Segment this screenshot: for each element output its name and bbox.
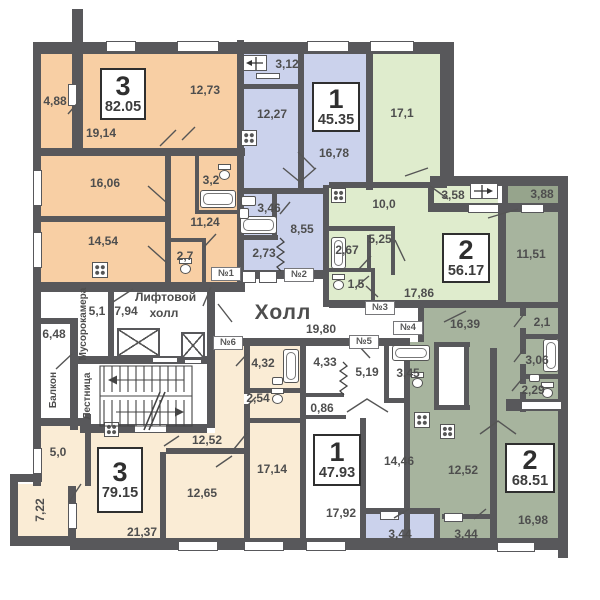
room-area-label: 1,5 — [342, 277, 370, 291]
apartment-badge: 1 47.93 — [313, 434, 361, 486]
wall — [202, 242, 206, 282]
room-area-label: 12,52 — [440, 463, 486, 477]
window — [177, 41, 219, 52]
room-area-label: 5,19 — [349, 365, 385, 379]
apartment-badge: 3 79.15 — [97, 447, 143, 513]
wall — [306, 415, 346, 419]
window — [68, 503, 77, 529]
apartment-rooms-count: 1 — [328, 87, 343, 112]
stove-icon — [331, 188, 346, 203]
sink-icon — [529, 374, 540, 382]
door-icon — [243, 55, 267, 71]
apartment-total-area: 82.05 — [105, 99, 141, 115]
wall — [237, 40, 244, 284]
wall — [558, 176, 568, 558]
wall — [520, 308, 526, 316]
wall — [520, 328, 526, 354]
room-area-label: 0,86 — [305, 401, 339, 415]
door-number-tag: №5 — [349, 335, 379, 349]
window — [244, 541, 284, 551]
elevator-icon — [117, 328, 160, 357]
room-area-label: 7,22 — [33, 490, 47, 530]
apartment-total-area: 68.51 — [512, 473, 548, 489]
room-area-label: 11,24 — [182, 215, 228, 229]
garbage-area-label: 5,1 — [86, 304, 108, 318]
stove-icon — [104, 422, 119, 437]
wall — [165, 156, 171, 284]
floor-plan: 3 82.05 1 45.35 2 56.17 2 68.51 3 79.15 … — [0, 0, 600, 600]
window — [521, 401, 562, 410]
wall — [10, 478, 18, 540]
room-area-label: 14,54 — [80, 234, 126, 248]
room-area-label: 2,73 — [246, 246, 282, 260]
wall — [33, 216, 169, 222]
room-area-label: 19,14 — [78, 126, 124, 140]
room-area-label: 3,88 — [524, 187, 560, 201]
door-number-tag: №1 — [211, 267, 241, 281]
room-area-label: 16,98 — [510, 513, 556, 527]
wall — [300, 340, 306, 545]
room-area-label: 16,39 — [442, 317, 488, 331]
wall — [238, 188, 326, 194]
lift-hall-label: Лифтовой — [135, 290, 193, 304]
room-area-label: 3,44 — [382, 527, 418, 541]
staircase-steps — [100, 366, 192, 430]
wall — [506, 302, 566, 308]
wall — [244, 346, 250, 394]
washer-icon — [239, 208, 249, 219]
room-area-label: 3,58 — [436, 188, 470, 202]
apartment-rooms-count: 1 — [329, 440, 344, 465]
elevator-icon — [181, 332, 205, 359]
room-area-label: 3,46 — [252, 201, 286, 215]
room-area-label: 17,14 — [249, 462, 295, 476]
room-area-label: 4,33 — [307, 355, 343, 369]
garbage-room-label: Мусорокамера — [77, 286, 91, 362]
room-area-label: 2,67 — [329, 243, 365, 257]
apartment-rooms-count: 2 — [458, 238, 473, 263]
wall — [371, 268, 375, 304]
bathtub-icon — [392, 345, 430, 361]
wall — [250, 418, 303, 423]
room-area-label: 16,78 — [312, 146, 356, 160]
room-area-label: 14,46 — [376, 454, 422, 468]
bathtub-icon — [283, 349, 299, 383]
room-area-label: 12,65 — [179, 486, 225, 500]
lift-hall-label: холл — [147, 306, 181, 320]
wall — [243, 84, 300, 89]
wall — [329, 226, 395, 231]
wall — [366, 42, 373, 190]
window — [497, 542, 535, 552]
stove-icon — [241, 130, 257, 146]
window — [468, 204, 499, 213]
wall — [10, 474, 42, 482]
lift-hall-area-label: 7,94 — [111, 304, 141, 318]
room-area-label: 17,86 — [396, 286, 442, 300]
apartment-total-area: 79.15 — [102, 485, 138, 501]
balcony-area-label: 6,48 — [40, 327, 68, 341]
wall — [434, 508, 440, 542]
door-number-tag: №4 — [393, 321, 423, 335]
wall — [72, 9, 83, 42]
room-area-label: 21,37 — [119, 525, 165, 539]
apartment-badge: 1 45.35 — [312, 82, 360, 132]
elevator-door — [152, 357, 178, 363]
room-area-label: 4,88 — [38, 94, 72, 108]
staircase-label: Лестница — [81, 366, 95, 426]
apartment-badge: 2 68.51 — [505, 443, 555, 493]
room-area-label: 10,0 — [366, 197, 402, 211]
room-area-label: 3,12 — [270, 57, 304, 71]
window — [306, 541, 346, 551]
wall — [384, 398, 410, 403]
elevator-door — [184, 359, 202, 364]
apartment-total-area: 47.93 — [319, 465, 355, 481]
wall — [440, 42, 454, 184]
apartment-badge: 2 56.17 — [442, 233, 490, 283]
door-icon — [470, 183, 498, 199]
window — [521, 204, 544, 213]
stove-icon — [440, 424, 455, 439]
door-number-tag: №2 — [284, 268, 314, 282]
wall — [498, 210, 506, 308]
hall-title: Холл — [248, 302, 318, 324]
apartment-rooms-count: 2 — [522, 448, 537, 473]
stove-icon — [414, 412, 430, 428]
window — [307, 41, 349, 52]
apartment-total-area: 45.35 — [318, 112, 354, 128]
room-area-label: 12,52 — [185, 433, 229, 447]
room-area-label: 3,45 — [391, 366, 425, 380]
wall — [306, 393, 344, 397]
wall — [464, 342, 469, 410]
stove-icon — [92, 262, 108, 278]
vent-shaft — [259, 271, 277, 283]
window — [33, 448, 42, 474]
wall — [10, 536, 76, 546]
window — [370, 41, 414, 52]
room-area-label: 2,7 — [171, 249, 199, 263]
wall — [238, 235, 278, 240]
window — [33, 170, 42, 206]
room-area-label: 16,06 — [82, 176, 128, 190]
window — [444, 513, 463, 522]
balcony-label: Балкон — [47, 350, 61, 430]
window — [380, 511, 399, 520]
wall — [490, 348, 497, 542]
apartment-badge: 3 82.05 — [100, 68, 146, 120]
room-area-label: 3,2 — [197, 173, 225, 187]
shaft — [439, 347, 464, 405]
wall — [166, 448, 244, 454]
stair-landing — [134, 424, 167, 433]
door-number-tag: №3 — [365, 301, 395, 315]
sink-icon — [272, 377, 283, 385]
room-area-label: 17,1 — [384, 106, 420, 120]
wall — [502, 176, 508, 210]
room-area-label: 5,25 — [362, 232, 398, 246]
radiator — [256, 73, 280, 79]
wall — [366, 508, 436, 514]
wall — [430, 176, 566, 186]
wall — [195, 210, 241, 214]
window — [33, 232, 42, 268]
room-area-label: 17,92 — [318, 506, 364, 520]
apartment-total-area: 56.17 — [448, 263, 484, 279]
apartment-rooms-count: 3 — [115, 74, 130, 99]
room-area-label: 2,54 — [241, 391, 275, 405]
room-area-label: 5,0 — [44, 445, 72, 459]
wall — [108, 288, 114, 358]
apartment-rooms-count: 3 — [112, 460, 127, 485]
room-area-label: 3,44 — [448, 527, 484, 541]
wall — [33, 318, 78, 324]
hall-area-label: 19,80 — [300, 322, 342, 336]
window — [106, 41, 136, 52]
wall — [171, 238, 206, 242]
room-area-label: 2,1 — [528, 315, 556, 329]
room-area-label: 12,73 — [182, 83, 228, 97]
room-area-label: 4,32 — [245, 356, 281, 370]
door-number-tag: №6 — [213, 336, 243, 350]
room-area-label: 8,55 — [284, 222, 320, 236]
bathtub-icon — [200, 190, 236, 208]
room-area-label: 12,27 — [250, 107, 294, 121]
vent-shaft — [242, 271, 256, 283]
wall — [33, 148, 245, 156]
room-area-label: 3,06 — [519, 353, 555, 367]
room-area-label: 11,51 — [508, 247, 554, 261]
window — [178, 541, 218, 551]
room-area-label: 2,29 — [515, 383, 551, 397]
